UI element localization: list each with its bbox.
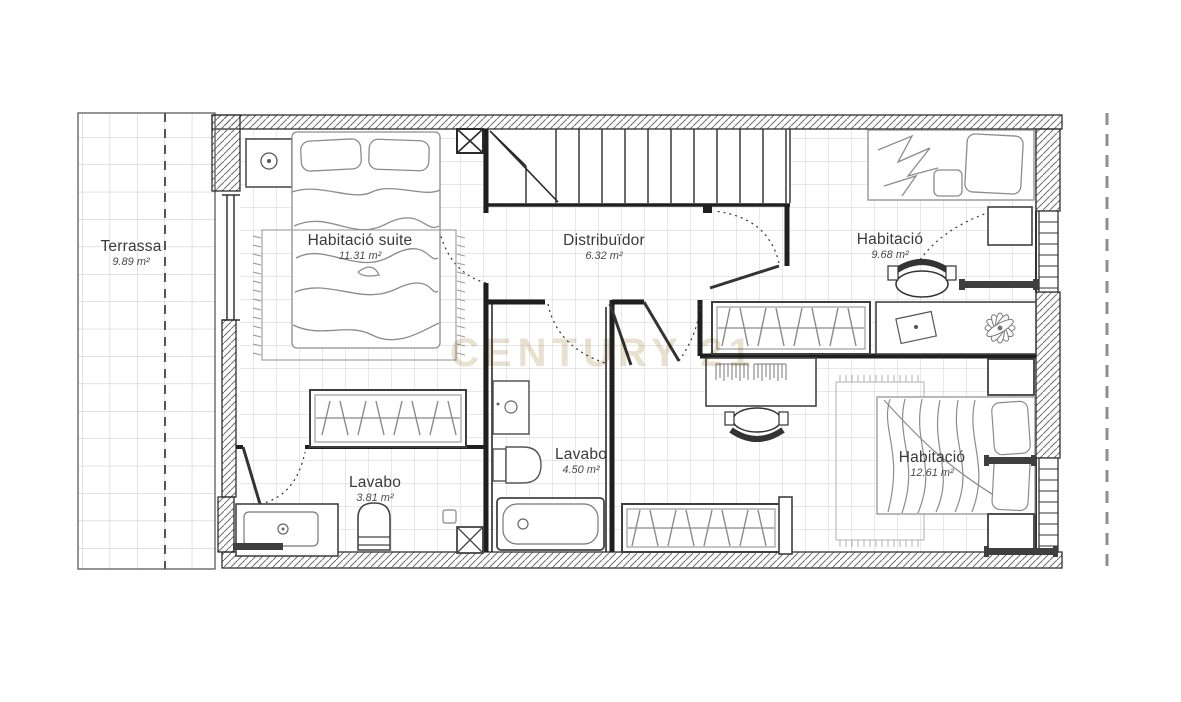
room-name-lavabo-center: Lavabo [555, 446, 607, 464]
bedroom2-nightstand-top [988, 359, 1034, 395]
room-name-lavabo-left: Lavabo [349, 474, 401, 492]
room-label-lavabo-left: Lavabo 3.81 m² [349, 474, 401, 504]
room-area-habitacio-suite: 11.31 m² [339, 250, 382, 263]
window-shutter-bottom-right [1039, 458, 1058, 552]
bathroom2-toilet [493, 447, 541, 483]
room-name-habitacio-top: Habitació [857, 231, 923, 249]
room-label-habitacio-suite: Habitació suite 11.31 m² [308, 232, 413, 262]
suite-terrace-window [222, 195, 240, 320]
bedroom1-wall-cabinet [988, 207, 1032, 245]
bathroom1-toilet [358, 503, 390, 550]
room-area-habitacio-bottom: 12.61 m² [910, 467, 953, 480]
bathroom2-sink [493, 381, 529, 434]
room-name-distribuidor: Distribuïdor [563, 232, 645, 250]
room-name-terrassa: Terrassa [100, 238, 161, 256]
bathroom1-vanity [233, 504, 338, 556]
window-shutter-top-right [1039, 211, 1058, 292]
room-area-distribuidor: 6.32 m² [585, 250, 622, 263]
room-area-habitacio-top: 9.68 m² [871, 249, 908, 262]
room-label-lavabo-center: Lavabo 4.50 m² [555, 446, 607, 476]
floorplan-svg [0, 0, 1181, 702]
bedroom1-wardrobe [712, 302, 870, 354]
room-area-terrassa: 9.89 m² [112, 256, 149, 269]
bedroom2-wardrobe [622, 497, 792, 554]
floorplan-stage: Terrassa 9.89 m² Habitació suite 11.31 m… [0, 0, 1181, 702]
room-label-distribuidor: Distribuïdor 6.32 m² [563, 232, 645, 262]
suite-nightstand [246, 139, 292, 187]
terrace-floor [78, 113, 215, 569]
room-label-habitacio-top: Habitació 9.68 m² [857, 231, 923, 261]
bedroom2-desk [706, 358, 816, 406]
bathroom2-bathtub [497, 498, 604, 550]
room-label-terrassa: Terrassa 9.89 m² [100, 238, 161, 268]
room-area-lavabo-center: 4.50 m² [562, 464, 599, 477]
room-name-habitacio-bottom: Habitació [899, 449, 965, 467]
bedroom1-single-bed [868, 130, 1034, 200]
room-name-habitacio-suite: Habitació suite [308, 232, 413, 250]
room-area-lavabo-left: 3.81 m² [356, 492, 393, 505]
room-label-habitacio-bottom: Habitació 12.61 m² [899, 449, 965, 479]
suite-wardrobe [310, 390, 466, 447]
bedroom1-desk [876, 302, 1036, 354]
